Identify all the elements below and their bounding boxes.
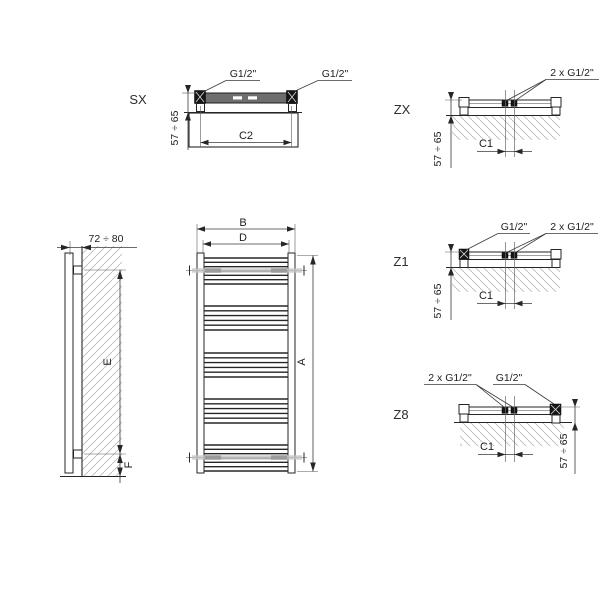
zx-top-view: ZX 57 ÷ 65 C1 2 x G1/2" [394,67,599,168]
port-side-text: G1/2" [496,372,523,384]
bottom-offset-value: F [123,461,135,468]
connection-spacing-value: D [239,232,247,244]
depth-dimension: 57 ÷ 65 [169,85,196,150]
bar-slot [233,96,242,99]
wall-bracket [289,104,297,112]
port-left-text: G1/2" [230,68,257,80]
width-value: C2 [239,130,253,142]
wall-bracket [552,260,560,268]
side-view: 72 ÷ 80 E F [57,233,137,483]
overall-width-value: B [239,217,246,229]
depth-value: 57 ÷ 65 [169,110,181,145]
wall-hatch [452,268,560,292]
bracket-span-value: E [102,358,114,365]
rung-group-3 [204,353,288,377]
wall-bracket [460,414,468,422]
center-distance-value: C1 [480,441,494,453]
wall-bracket [460,260,468,268]
center-distance-value: C1 [479,138,493,150]
center-distance-value: C1 [479,290,493,302]
center-port [502,253,508,258]
wall-bracket [552,415,560,423]
wall-bracket-bottom [74,450,83,458]
technical-drawing-canvas: SX 57 ÷ 65 C2 G1/2" [0,0,616,616]
wall-bracket [552,107,560,115]
height-dimension: A [296,256,318,472]
connection-spacing-dimension: D [203,232,289,253]
port-right-text: G1/2" [322,68,349,80]
z1-top-view: Z1 57 ÷ 65 C1 G1/2" [393,221,598,320]
center-port [511,408,517,414]
bar-slot [248,96,257,99]
end-cap-left [459,405,469,415]
ports-center-text: 2 x G1/2" [550,67,594,79]
collector-left [197,253,204,473]
port-side-label: G1/2" [493,372,554,404]
rung-group-2 [204,306,288,330]
view-label-z1: Z1 [393,254,408,269]
sx-top-view: SX 57 ÷ 65 C2 G1/2" [129,68,352,150]
z8-top-view: Z8 57 ÷ 65 C1 2 x G1/2" [393,372,580,474]
port-label-left: G1/2" [203,68,260,92]
center-port [502,408,508,414]
view-label-sx: SX [129,92,147,107]
ports-center-text: 2 x G1/2" [550,221,594,233]
drawing-svg: SX 57 ÷ 65 C2 G1/2" [0,0,616,616]
center-port [511,253,517,258]
wall-hatch [460,423,564,446]
wall-hatch [452,116,560,140]
depth-value: 57 ÷ 65 [558,433,570,468]
port-side-text: G1/2" [501,221,528,233]
collector-right [288,253,295,473]
center-port [511,101,517,107]
view-label-zx: ZX [394,102,411,117]
depth-value: 57 ÷ 65 [432,131,444,166]
ports-center-text: 2 x G1/2" [428,372,472,384]
end-cap-right [551,250,561,260]
depth-value: 57 ÷ 65 [432,283,444,318]
center-distance-dimension: C1 [477,290,532,306]
radiator-bar-top-view [196,93,296,103]
ports-center-label: 2 x G1/2" [506,67,599,101]
center-port [502,101,508,107]
end-cap-left [459,98,469,108]
bottom-offset-dimension: F [117,454,135,483]
view-label-z8: Z8 [393,407,408,422]
end-cap-right [551,98,561,108]
rung-group-4 [204,399,288,423]
wall-distance-value: 72 ÷ 80 [89,233,124,245]
height-value: A [296,358,308,366]
center-distance-dimension: C1 [477,138,532,154]
front-view: B D A [186,217,318,473]
radiator-profile [65,253,73,473]
port-label-right: G1/2" [294,68,352,92]
wall-bracket-top [74,266,83,274]
wall-bracket [460,107,468,115]
